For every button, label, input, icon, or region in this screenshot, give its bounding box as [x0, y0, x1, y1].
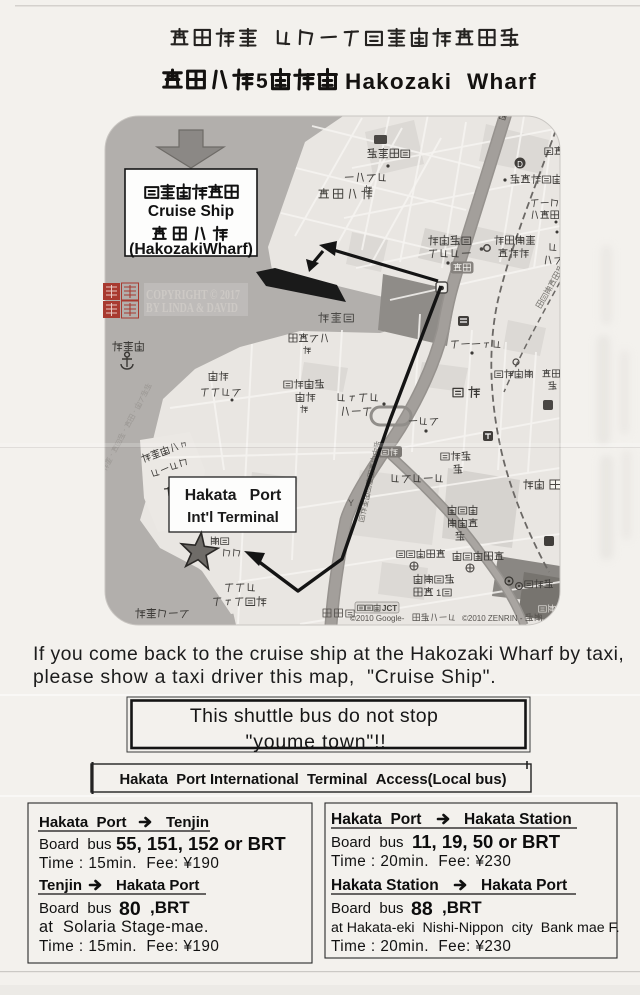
svg-text:at Hakata-eki Nishi-Nippon c: at Hakata-eki Nishi-Nippon city Bank mae…: [331, 920, 620, 936]
svg-text:Time : 20min. Fee: ¥230: Time : 20min. Fee: ¥230: [331, 938, 511, 955]
svg-text:Board bus: Board bus: [331, 834, 404, 851]
svg-text:Board bus: Board bus: [39, 836, 112, 853]
svg-text:,BRT: ,BRT: [150, 898, 190, 917]
svg-text:88: 88: [411, 898, 433, 920]
svg-text:Tenjin: Tenjin: [166, 814, 209, 831]
svg-text:Hakata Port: Hakata Port: [185, 487, 282, 504]
svg-text:"youme town"!!: "youme town"!!: [245, 731, 386, 753]
svg-text:Int'l Terminal: Int'l Terminal: [187, 509, 279, 526]
svg-text:©2010 ZENRIN -: ©2010 ZENRIN -: [462, 614, 523, 623]
svg-text:©2010 Google-: ©2010 Google-: [350, 614, 405, 623]
svg-text:Time : 15min. Fee: ¥190: Time : 15min. Fee: ¥190: [39, 938, 219, 955]
svg-text:5: 5: [256, 70, 268, 93]
svg-text:Board bus: Board bus: [331, 900, 404, 917]
svg-text:Hakata Port: Hakata Port: [116, 877, 199, 894]
svg-text:If you come back to the cruise: If you come back to the cruise ship at t…: [33, 643, 624, 665]
svg-text:55, 151, 152 or BRT: 55, 151, 152 or BRT: [116, 833, 286, 854]
svg-text:Time : 15min. Fee: ¥190: Time : 15min. Fee: ¥190: [39, 855, 219, 872]
svg-text:,BRT: ,BRT: [442, 898, 482, 917]
svg-text:Hakata Port International Te: Hakata Port International Terminal Acces…: [119, 772, 506, 788]
svg-text:80: 80: [119, 898, 141, 920]
svg-text:please show a taxi driver this: please show a taxi driver this map, "Cru…: [33, 666, 496, 688]
svg-text:Cruise Ship: Cruise Ship: [148, 203, 234, 220]
svg-text:Hakata Port: Hakata Port: [331, 811, 421, 828]
svg-text:Time : 20min. Fee: ¥230: Time : 20min. Fee: ¥230: [331, 853, 511, 870]
svg-text:Hakata Port: Hakata Port: [39, 814, 127, 831]
svg-text:Board bus: Board bus: [39, 900, 112, 917]
svg-text:BY LINDA & DAVID: BY LINDA & DAVID: [146, 301, 238, 316]
svg-text:at Solaria Stage-mae.: at Solaria Stage-mae.: [39, 918, 209, 936]
svg-text:JCT: JCT: [382, 604, 397, 613]
svg-text:Hakozaki Wharf: Hakozaki Wharf: [345, 69, 537, 94]
svg-text:Hakata Station: Hakata Station: [331, 877, 439, 894]
svg-text:Hakata Station: Hakata Station: [464, 811, 572, 828]
svg-text:This shuttle bus do not stop: This shuttle bus do not stop: [190, 705, 438, 727]
svg-text:D: D: [517, 160, 523, 169]
svg-text:1: 1: [436, 588, 441, 599]
svg-text:(HakozakiWharf): (HakozakiWharf): [129, 241, 253, 258]
svg-text:Y: Y: [348, 498, 354, 508]
svg-text:Tenjin: Tenjin: [39, 877, 82, 894]
svg-text:11, 19, 50 or BRT: 11, 19, 50 or BRT: [412, 831, 561, 852]
svg-text:Hakata Port: Hakata Port: [481, 877, 567, 894]
